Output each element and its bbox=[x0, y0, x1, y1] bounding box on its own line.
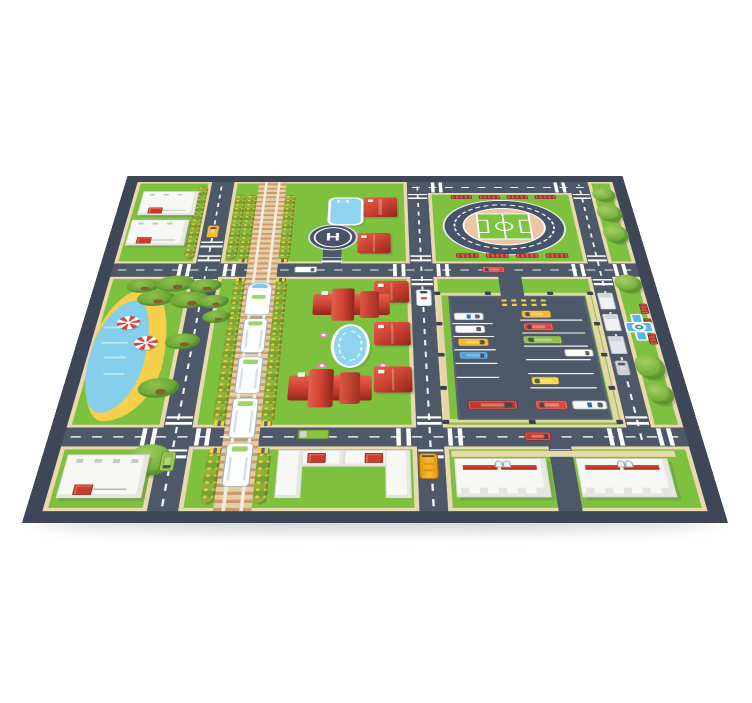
garden-pool bbox=[330, 324, 370, 368]
entrance-marking bbox=[502, 304, 548, 306]
crossing-marker bbox=[258, 448, 270, 453]
parking-stall-line bbox=[457, 377, 500, 378]
train-locomotive bbox=[244, 282, 274, 315]
cab bbox=[300, 431, 307, 437]
truck bbox=[607, 336, 628, 354]
train-car bbox=[239, 318, 268, 352]
manor-ch bbox=[321, 291, 328, 295]
fence-post bbox=[547, 292, 553, 295]
fence-post bbox=[608, 386, 615, 390]
office-building bbox=[56, 455, 150, 499]
manor-v bbox=[331, 288, 355, 320]
hedge bbox=[199, 452, 221, 505]
train-car bbox=[221, 443, 254, 487]
roof bbox=[300, 268, 311, 270]
apt-tabs bbox=[461, 488, 546, 494]
bench bbox=[545, 253, 568, 257]
crossing-marker bbox=[214, 421, 226, 426]
manor-v2 bbox=[360, 291, 379, 318]
roof bbox=[531, 435, 544, 438]
fence-post bbox=[438, 353, 444, 357]
palm-tree bbox=[187, 279, 222, 293]
car bbox=[482, 266, 506, 272]
flower-pink bbox=[317, 363, 327, 369]
roof bbox=[572, 352, 587, 354]
fence-post bbox=[594, 322, 601, 325]
fence-post bbox=[601, 353, 608, 357]
car bbox=[523, 323, 555, 331]
apt-tabs bbox=[586, 488, 672, 494]
crosswalk bbox=[194, 428, 213, 445]
bench bbox=[486, 253, 509, 257]
parking-stall-line bbox=[530, 387, 597, 388]
train-car bbox=[234, 357, 264, 394]
footpath bbox=[451, 451, 676, 457]
crosswalk bbox=[222, 264, 237, 276]
bench bbox=[534, 195, 556, 199]
road-stub bbox=[498, 277, 525, 300]
tree bbox=[595, 204, 625, 221]
palm-tree bbox=[136, 378, 181, 398]
office-building bbox=[125, 220, 190, 246]
swimming-pool bbox=[327, 197, 363, 225]
ambulance bbox=[416, 290, 433, 306]
bench bbox=[479, 195, 500, 199]
roof bbox=[529, 313, 544, 316]
hedge bbox=[278, 195, 295, 260]
fence-post bbox=[485, 292, 491, 295]
roof bbox=[466, 354, 480, 356]
lbpart bbox=[274, 450, 303, 498]
truck bbox=[602, 314, 622, 331]
small-house bbox=[363, 197, 397, 217]
bench bbox=[456, 253, 479, 257]
roof bbox=[463, 328, 478, 331]
unit bbox=[365, 453, 383, 463]
entrance-marking bbox=[501, 299, 546, 301]
cab bbox=[610, 337, 622, 341]
fence-post bbox=[436, 322, 442, 325]
car bbox=[614, 360, 631, 375]
crosswalk bbox=[197, 255, 221, 261]
crosswalk bbox=[592, 279, 613, 285]
glass bbox=[162, 465, 171, 468]
crosswalk bbox=[396, 428, 412, 445]
plaza-fountain bbox=[622, 314, 658, 341]
crossing-marker bbox=[278, 259, 288, 263]
car bbox=[455, 325, 486, 333]
car bbox=[206, 225, 220, 237]
parking-stall-line bbox=[454, 349, 495, 350]
car bbox=[458, 338, 490, 346]
car bbox=[531, 377, 560, 385]
crosswalk bbox=[587, 255, 607, 261]
manor-v bbox=[307, 369, 334, 407]
crosswalk bbox=[571, 264, 587, 276]
car bbox=[524, 432, 552, 441]
crosswalk bbox=[417, 416, 442, 424]
parking-stall-line bbox=[528, 373, 594, 374]
parking-stall-line bbox=[456, 363, 498, 364]
roof bbox=[533, 338, 553, 341]
polst bbox=[466, 314, 471, 318]
crosswalk bbox=[165, 416, 193, 424]
fence-post bbox=[440, 386, 447, 390]
parking-stall-line bbox=[453, 336, 494, 337]
f-i bbox=[635, 325, 644, 330]
car bbox=[467, 401, 518, 410]
fence-post bbox=[529, 420, 536, 424]
train-car bbox=[228, 398, 260, 439]
flower-pink bbox=[319, 332, 328, 337]
fence-post bbox=[434, 292, 440, 295]
office-building bbox=[137, 191, 199, 215]
scene-objects bbox=[22, 176, 728, 523]
crossing-marker bbox=[236, 278, 246, 282]
apt-stripe bbox=[585, 465, 620, 470]
roof bbox=[480, 403, 505, 406]
roof bbox=[619, 365, 626, 371]
bench bbox=[516, 253, 539, 257]
small-house bbox=[374, 322, 411, 346]
car bbox=[158, 452, 177, 472]
roof bbox=[164, 458, 172, 465]
truck bbox=[597, 293, 617, 310]
unit bbox=[307, 453, 326, 463]
l-shaped-building bbox=[341, 450, 412, 498]
manor-house bbox=[287, 369, 372, 407]
pipe bbox=[92, 488, 127, 490]
car bbox=[521, 310, 552, 317]
pipe bbox=[162, 210, 185, 211]
crossing-marker bbox=[239, 259, 249, 263]
crosswalk bbox=[393, 264, 407, 276]
unit bbox=[72, 485, 94, 495]
crosswalk bbox=[410, 255, 431, 261]
car bbox=[459, 352, 489, 359]
apt-stripe bbox=[463, 465, 498, 470]
crosswalk bbox=[436, 264, 450, 276]
bench bbox=[506, 195, 528, 199]
polst bbox=[587, 402, 593, 407]
tree bbox=[612, 275, 644, 293]
apartment-building bbox=[454, 458, 552, 497]
small-house bbox=[357, 233, 391, 253]
crosswalk bbox=[176, 264, 192, 276]
crosswalk bbox=[139, 428, 158, 445]
unit bbox=[147, 208, 163, 214]
cab bbox=[599, 294, 611, 298]
car bbox=[564, 349, 595, 356]
truck bbox=[297, 430, 329, 439]
beach-umbrella bbox=[132, 336, 159, 350]
apartment-building bbox=[575, 458, 677, 497]
roof bbox=[466, 341, 481, 344]
crosswalk bbox=[431, 182, 444, 192]
roof bbox=[488, 268, 499, 270]
crosswalk bbox=[625, 416, 649, 424]
tree bbox=[601, 224, 631, 243]
manor-v2 bbox=[339, 372, 360, 404]
crosswalk bbox=[321, 257, 342, 262]
crosswalk bbox=[553, 182, 567, 192]
small-house bbox=[374, 367, 413, 393]
crossing-marker bbox=[260, 421, 272, 426]
roof bbox=[210, 229, 216, 234]
apt-chim bbox=[624, 461, 634, 468]
manor-ch bbox=[297, 372, 305, 376]
crosswalk bbox=[572, 194, 591, 199]
crossing-marker bbox=[210, 448, 222, 453]
car bbox=[571, 401, 608, 410]
hedge bbox=[252, 452, 271, 505]
parking-stall-line bbox=[452, 323, 492, 324]
crosswalk bbox=[447, 428, 464, 445]
pipe bbox=[151, 240, 175, 241]
water-ripple bbox=[101, 342, 128, 344]
roof bbox=[543, 403, 559, 406]
tree bbox=[632, 354, 668, 379]
fence-post bbox=[616, 420, 624, 424]
crosswalk bbox=[656, 428, 676, 445]
car bbox=[294, 266, 317, 272]
roof bbox=[531, 326, 546, 329]
parking-stall-line bbox=[520, 320, 582, 321]
crosswalk bbox=[411, 279, 432, 285]
parking-stall-line bbox=[522, 332, 585, 333]
cab bbox=[604, 315, 616, 319]
bench bbox=[639, 304, 650, 314]
car bbox=[523, 336, 563, 344]
school-bus bbox=[418, 453, 439, 479]
car bbox=[453, 313, 484, 320]
crossing-marker bbox=[276, 278, 286, 282]
city-play-mat: H bbox=[22, 176, 728, 523]
apt-chim bbox=[503, 461, 512, 468]
water-ripple bbox=[103, 373, 125, 375]
crosswalk bbox=[607, 428, 627, 445]
crosswalk bbox=[408, 194, 427, 199]
fence-post bbox=[587, 292, 594, 295]
bench bbox=[451, 195, 472, 199]
l-shaped-building bbox=[274, 450, 346, 498]
palm-tree bbox=[164, 334, 202, 350]
palm-tree bbox=[198, 295, 230, 308]
unit bbox=[136, 237, 152, 243]
tree bbox=[591, 188, 617, 202]
tree bbox=[644, 383, 677, 404]
water-ripple bbox=[103, 357, 126, 359]
roof bbox=[538, 379, 552, 382]
manor-house bbox=[312, 288, 390, 320]
product-photo: H bbox=[0, 0, 752, 703]
lbpart bbox=[385, 450, 412, 498]
crosswalk bbox=[200, 242, 223, 248]
parking-stall-line bbox=[526, 359, 591, 360]
fence-post bbox=[442, 420, 449, 424]
parking-stall-line bbox=[524, 346, 588, 347]
car bbox=[535, 401, 569, 410]
water-ripple bbox=[103, 327, 122, 329]
